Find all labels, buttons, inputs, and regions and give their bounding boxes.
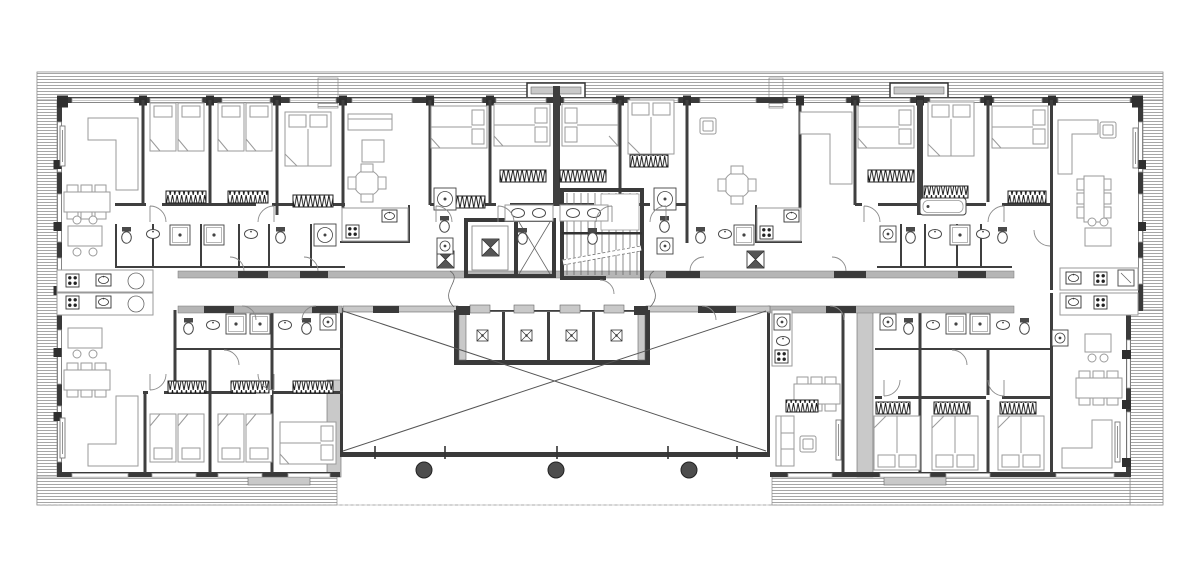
double-bed-icon (285, 112, 331, 166)
sofa-icon (776, 416, 794, 466)
bedrooms-center (431, 100, 674, 154)
toilet-icon (588, 228, 598, 244)
wash-basin-icon (279, 321, 292, 330)
toilet-icon (1020, 318, 1030, 334)
elevator-bank: elevator bank (454, 305, 650, 365)
washing-machine-icon (657, 238, 673, 254)
dining-table-icon (1076, 371, 1122, 405)
toilet-icon (122, 227, 132, 243)
balcony-band-bottom-right (772, 477, 1130, 505)
windows-bottom (72, 473, 1114, 477)
fridge-icon (1118, 270, 1134, 286)
armchair-icon (1100, 122, 1116, 138)
window-sill-bottom-right (884, 477, 946, 485)
core: stair and elevator core (437, 188, 764, 280)
shower-icon (950, 225, 970, 245)
shower-icon (250, 314, 270, 334)
bath-core-left (434, 188, 456, 254)
bath-bottom-left-block (184, 314, 336, 334)
column-icon (416, 462, 432, 478)
toilet-icon (440, 216, 450, 232)
wash-basin-icon (719, 230, 732, 239)
wardrobe-icon (293, 381, 333, 393)
round-table-icon (348, 164, 386, 202)
toilet-icon (906, 227, 916, 243)
single-bed-icon (246, 103, 272, 151)
wash-basin-icon (927, 321, 940, 330)
wardrobe-icon (1008, 191, 1046, 203)
toilet-icon (660, 216, 670, 232)
elevator-machine-icon (482, 239, 499, 256)
kitchen-sink-icon (96, 296, 111, 308)
kitchen-sink-icon (96, 274, 111, 286)
toilet-icon (696, 227, 706, 243)
tv-icon (836, 420, 841, 460)
single-bed-icon (150, 103, 176, 151)
kitchen-sink-icon (1066, 296, 1081, 308)
wall-junction-blocks (54, 96, 1147, 468)
wash-basin-icon (245, 230, 258, 239)
shower-icon (204, 225, 224, 245)
double-bed-icon (858, 106, 914, 148)
wardrobe-icon (168, 381, 206, 393)
shower-icon (434, 188, 456, 210)
single-bed-icon (246, 414, 272, 462)
wardrobe-icon (293, 195, 333, 207)
toilet-icon (302, 318, 312, 334)
elevator-icon (521, 330, 532, 341)
wash-basin-icon (147, 230, 160, 239)
washing-machine-icon (437, 238, 453, 254)
tv-icon (60, 418, 65, 458)
bath-core-right (654, 188, 676, 254)
sofa-icon (88, 396, 138, 466)
kitchen-sink-icon (382, 210, 397, 222)
elevator-icon (611, 330, 622, 341)
armchair-icon (800, 436, 816, 452)
wardrobe-icon (786, 400, 818, 412)
wash-basin-icon (777, 337, 790, 346)
stove-icon (1094, 272, 1107, 285)
single-bed-icon (178, 414, 204, 462)
washing-machine-icon (320, 314, 336, 330)
toilet-icon (184, 318, 194, 334)
toilet-icon (518, 228, 528, 244)
apartment-top-right-corner (1058, 120, 1138, 290)
terrace: terrace with cross bracing (343, 311, 766, 459)
apartment-bottom-left (57, 293, 336, 466)
double-bed-icon (280, 422, 336, 464)
bedrooms-top-right (858, 102, 1048, 156)
toilet-icon (998, 227, 1008, 243)
single-bed-icon (150, 414, 176, 462)
wash-basin-icon (977, 230, 990, 239)
vent-shaft-icon (747, 251, 764, 268)
shower-icon (946, 314, 966, 334)
window-sill-bottom-left (248, 477, 310, 485)
wardrobe-icon (228, 191, 268, 203)
sofa-icon (348, 114, 392, 130)
wardrobe-icon (924, 186, 968, 198)
elevator-icon (477, 330, 488, 341)
elevator-icon (566, 330, 577, 341)
apartment-top-second-living (342, 114, 408, 241)
wardrobe-icon (630, 155, 668, 167)
wardrobe-icon (868, 170, 914, 182)
toilet-icon (276, 227, 286, 243)
wash-basin-icon (207, 321, 220, 330)
round-table-icon (718, 166, 756, 204)
wardrobe-icon (500, 170, 546, 182)
stove-icon (775, 350, 788, 363)
single-bed-icon (218, 103, 244, 151)
floor-plan-page: floor plan ba (0, 0, 1200, 585)
double-bed-icon (932, 416, 978, 470)
wash-basin-icon (997, 321, 1010, 330)
double-bed-icon (928, 102, 974, 156)
washing-machine-icon (1052, 330, 1068, 346)
kitchen-island-icon (68, 328, 102, 348)
stove-icon (66, 274, 79, 287)
balcony-band-right-lower (1130, 310, 1163, 505)
double-bed-icon (494, 104, 550, 146)
washing-machine-icon (880, 314, 896, 330)
wardrobe-icon (934, 402, 970, 414)
double-bed-icon (562, 104, 618, 146)
stove-icon (346, 225, 359, 238)
stove-icon (66, 296, 79, 309)
balcony-divider-pier-left (318, 78, 338, 108)
washing-machine-icon (880, 226, 896, 242)
tv-icon (1133, 128, 1138, 168)
double-bed-icon (874, 416, 920, 470)
balcony-band-right-upper (1143, 100, 1163, 310)
bedrooms-top-left (150, 103, 331, 166)
stove-icon (1094, 296, 1107, 309)
shower-icon (654, 188, 676, 210)
sofa-icon (88, 118, 138, 190)
bath-bottom-right-block (880, 314, 1029, 334)
shower-icon (734, 225, 754, 245)
balcony-divider-pier-right (769, 78, 783, 108)
apartment-top-right-middle (700, 112, 852, 241)
armchair-icon (700, 118, 716, 134)
kitchen-island-icon (1085, 334, 1111, 352)
column-icon (548, 462, 564, 478)
sofa-icon (1062, 420, 1112, 468)
wardrobe-icon (166, 191, 206, 203)
terrace-side-strip-right (857, 310, 873, 477)
toilet-icon (904, 318, 914, 334)
single-bed-icon (178, 103, 204, 151)
double-bed-icon (992, 106, 1048, 148)
kitchen-sink-icon (1066, 272, 1081, 284)
double-bed-icon (998, 416, 1044, 470)
apartment-bottom-right-corner (1052, 293, 1138, 468)
shower-icon (226, 314, 246, 334)
tv-icon (60, 126, 65, 166)
shower-icon (970, 314, 990, 334)
structural-columns: columns (416, 462, 697, 478)
sofa-icon (800, 112, 852, 184)
double-bed-icon (431, 106, 487, 148)
dining-table-icon (64, 363, 110, 397)
shower-icon (170, 225, 190, 245)
floor-plan: floor plan ba (0, 0, 1200, 585)
kitchen-island-icon (1085, 228, 1111, 246)
column-icon (681, 462, 697, 478)
single-bed-icon (218, 414, 244, 462)
bath-top-right-middle (696, 225, 754, 245)
shower-icon (314, 224, 336, 246)
coffee-table-icon (362, 140, 384, 162)
dining-table-icon (1077, 176, 1111, 222)
bathtub-icon (920, 198, 966, 215)
balcony-band-top (37, 72, 1163, 100)
wardrobe-icon (231, 381, 269, 393)
wardrobe-icon (876, 402, 910, 414)
washing-machine-icon (774, 314, 790, 330)
stove-icon (760, 226, 773, 239)
double-bed-icon (628, 100, 674, 154)
wardrobe-icon (1000, 402, 1036, 414)
sofa-icon (1058, 120, 1098, 174)
kitchen-sink-icon (784, 210, 799, 222)
wardrobe-icon (560, 170, 606, 182)
furniture: furniture (57, 100, 1138, 470)
tv-icon (1115, 422, 1120, 462)
wash-basin-icon (929, 230, 942, 239)
dining-table-icon (64, 185, 110, 219)
stairs (560, 188, 644, 280)
stair-rail (562, 232, 642, 235)
kitchen-island-icon (68, 226, 102, 246)
